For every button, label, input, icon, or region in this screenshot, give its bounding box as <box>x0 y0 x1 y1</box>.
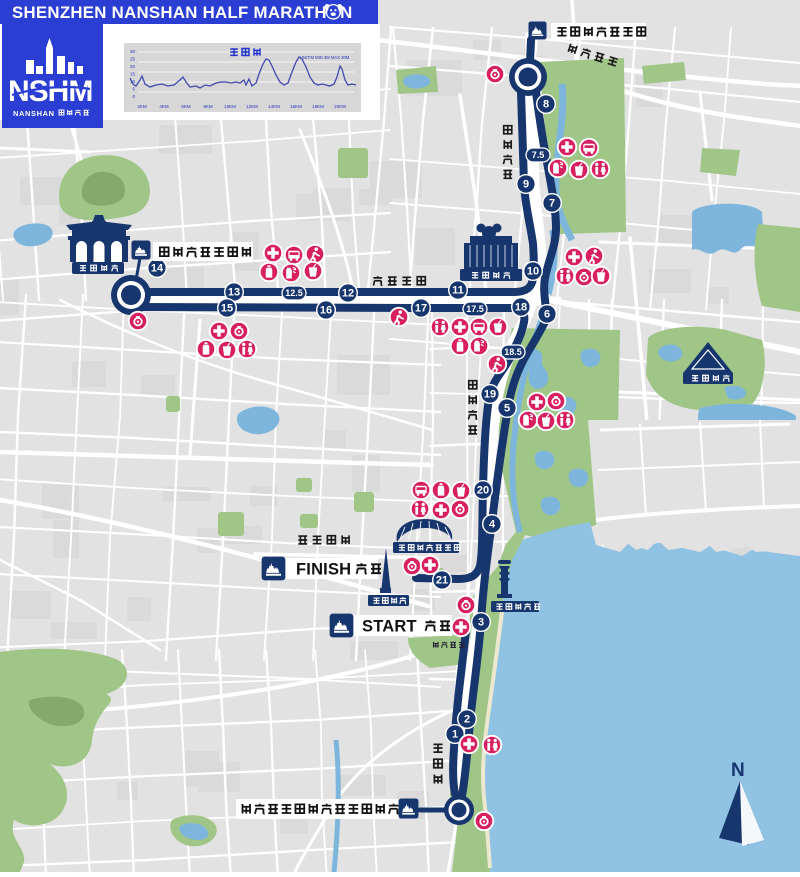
svg-text:UNIT:M MIN 3M MAX 30M: UNIT:M MIN 3M MAX 30M <box>300 55 350 60</box>
svg-text:18: 18 <box>515 302 527 314</box>
svg-text:4KM: 4KM <box>159 104 169 109</box>
svg-text:25: 25 <box>130 57 136 62</box>
svg-text:12.5: 12.5 <box>285 288 303 298</box>
svg-text:17: 17 <box>415 303 427 315</box>
svg-text:15: 15 <box>221 303 233 315</box>
svg-text:9: 9 <box>523 179 529 191</box>
svg-text:6KM: 6KM <box>181 104 191 109</box>
svg-text:3: 3 <box>478 617 484 629</box>
svg-text:14KM: 14KM <box>268 104 280 109</box>
svg-text:20KM: 20KM <box>334 104 346 109</box>
svg-text:2: 2 <box>464 714 470 726</box>
svg-text:11: 11 <box>452 285 464 297</box>
svg-text:7: 7 <box>549 198 555 210</box>
svg-text:N: N <box>731 760 745 781</box>
svg-text:16KM: 16KM <box>290 104 302 109</box>
svg-text:21: 21 <box>436 575 448 587</box>
svg-text:15: 15 <box>130 72 136 77</box>
svg-text:1: 1 <box>452 729 458 741</box>
svg-text:NANSHAN: NANSHAN <box>13 109 55 118</box>
svg-text:16: 16 <box>320 305 332 317</box>
svg-text:5: 5 <box>504 403 510 415</box>
svg-text:12: 12 <box>342 288 354 300</box>
svg-text:17.5: 17.5 <box>466 304 484 314</box>
svg-text:18.5: 18.5 <box>504 347 522 357</box>
svg-text:2KM: 2KM <box>137 104 147 109</box>
svg-text:10: 10 <box>527 266 539 278</box>
svg-text:SHENZHEN NANSHAN HALF MARATHON: SHENZHEN NANSHAN HALF MARATHON <box>12 3 353 22</box>
svg-text:30: 30 <box>130 49 136 54</box>
svg-text:20: 20 <box>130 64 136 69</box>
svg-text:FINISH: FINISH <box>296 561 351 579</box>
svg-text:18KM: 18KM <box>312 104 324 109</box>
svg-text:8KM: 8KM <box>203 104 213 109</box>
svg-text:10KM: 10KM <box>224 104 236 109</box>
svg-text:START: START <box>362 618 417 636</box>
svg-text:20: 20 <box>477 485 489 497</box>
svg-text:8: 8 <box>543 99 549 111</box>
svg-text:4: 4 <box>489 519 496 531</box>
svg-text:14: 14 <box>151 263 164 275</box>
svg-text:19: 19 <box>484 389 496 401</box>
svg-text:12KM: 12KM <box>246 104 258 109</box>
svg-text:13: 13 <box>228 287 240 299</box>
svg-text:7.5: 7.5 <box>532 150 545 160</box>
svg-text:6: 6 <box>544 309 550 321</box>
